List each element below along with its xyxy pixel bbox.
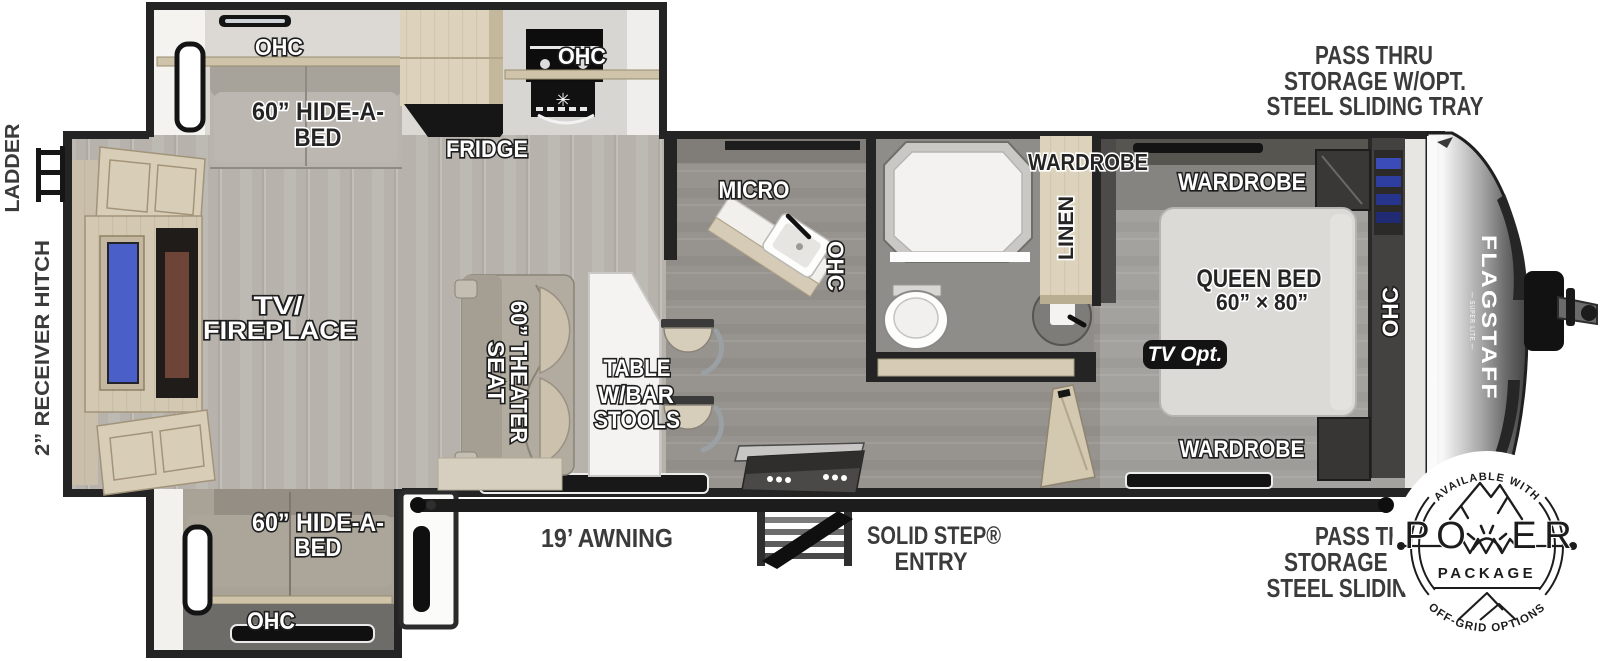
svg-text:60” × 80”: 60” × 80” [1216, 289, 1308, 315]
svg-text:FLAGSTAFF: FLAGSTAFF [1477, 235, 1500, 401]
svg-text:SEAT: SEAT [483, 341, 509, 403]
svg-text:BED: BED [295, 534, 342, 562]
svg-text:— SUPER LITE —: — SUPER LITE — [1468, 292, 1477, 350]
svg-text:W/BAR: W/BAR [598, 382, 674, 409]
svg-text:WARDROBE: WARDROBE [1180, 436, 1305, 463]
svg-text:OHC: OHC [255, 34, 303, 60]
svg-text:OHC: OHC [1378, 287, 1403, 337]
svg-text:STEEL SLIDING TRAY: STEEL SLIDING TRAY [1267, 91, 1484, 121]
svg-text:R: R [1544, 515, 1571, 557]
svg-text:TV Opt.: TV Opt. [1148, 343, 1223, 366]
svg-text:60” HIDE-A-: 60” HIDE-A- [252, 509, 384, 537]
svg-text:TABLE: TABLE [604, 355, 671, 382]
svg-text:WARDROBE: WARDROBE [1178, 169, 1306, 196]
svg-text:O: O [1436, 515, 1466, 557]
svg-text:MICRO: MICRO [719, 177, 790, 204]
svg-text:OHC: OHC [823, 241, 848, 291]
svg-text:TV/: TV/ [254, 292, 303, 320]
svg-text:19’ AWNING: 19’ AWNING [541, 523, 673, 553]
svg-text:60” HIDE-A-: 60” HIDE-A- [252, 98, 384, 126]
svg-text:FIREPLACE: FIREPLACE [203, 317, 357, 345]
svg-text:2” RECEIVER HITCH: 2” RECEIVER HITCH [32, 240, 54, 456]
svg-text:E: E [1511, 515, 1536, 557]
svg-text:SOLID STEP®: SOLID STEP® [867, 522, 1001, 550]
svg-text:OHC: OHC [247, 608, 295, 635]
svg-text:FRIDGE: FRIDGE [446, 136, 528, 163]
svg-text:LADDER: LADDER [2, 123, 24, 213]
svg-text:WARDROBE: WARDROBE [1028, 149, 1148, 175]
svg-text:ENTRY: ENTRY [895, 548, 968, 576]
svg-text:PACKAGE: PACKAGE [1438, 565, 1536, 582]
svg-text:BED: BED [295, 124, 342, 152]
svg-text:LINEN: LINEN [1055, 196, 1078, 260]
svg-text:P: P [1404, 515, 1429, 557]
svg-text:OHC: OHC [558, 43, 606, 69]
svg-text:STOOLS: STOOLS [594, 407, 680, 434]
